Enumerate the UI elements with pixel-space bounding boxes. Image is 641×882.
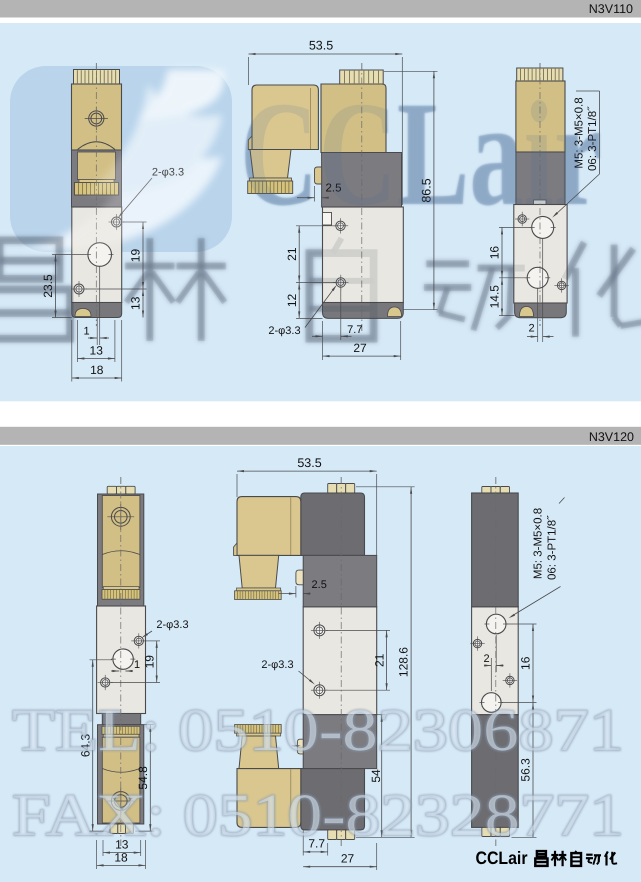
svg-text:CCLair: CCLair [240,71,602,237]
svg-text:2.5: 2.5 [312,579,327,591]
svg-text:21: 21 [285,247,299,261]
svg-text:2-φ3.3: 2-φ3.3 [156,619,188,631]
svg-text:53.5: 53.5 [297,456,321,470]
svg-text:2-φ3.3: 2-φ3.3 [261,659,293,671]
svg-text:FAX: 0510-82328771: FAX: 0510-82328771 [12,782,624,848]
svg-text:19: 19 [142,655,156,669]
svg-text:128.6: 128.6 [397,647,411,677]
svg-text:21: 21 [372,653,386,667]
svg-text:2: 2 [528,323,534,335]
svg-text:16: 16 [488,246,502,260]
svg-text:2: 2 [483,653,489,665]
svg-text:CCLair: CCLair [476,848,528,868]
svg-text:2-φ3.3: 2-φ3.3 [268,325,300,337]
svg-text:18: 18 [114,850,128,864]
svg-text:27: 27 [341,852,355,866]
svg-text:N3V110: N3V110 [589,2,633,16]
svg-text:1: 1 [83,326,89,338]
svg-text:TEL: 0510-82306871: TEL: 0510-82306871 [12,697,624,763]
svg-text:16: 16 [519,656,533,670]
svg-text:18: 18 [90,363,104,377]
svg-text:13: 13 [90,344,104,358]
svg-text:7.7: 7.7 [347,324,362,336]
svg-text:53.5: 53.5 [309,39,333,53]
svg-text:12: 12 [285,293,299,307]
svg-text:54: 54 [369,769,383,783]
svg-text:M5: 3-M5×0.8: M5: 3-M5×0.8 [533,508,545,579]
svg-text:1: 1 [134,659,140,671]
svg-text:27: 27 [353,341,367,355]
svg-text:14.5: 14.5 [488,285,502,309]
svg-text:06: 3-PT1/8˝: 06: 3-PT1/8˝ [547,515,559,580]
svg-text:N3V120: N3V120 [589,430,634,444]
svg-text:19: 19 [129,249,143,263]
